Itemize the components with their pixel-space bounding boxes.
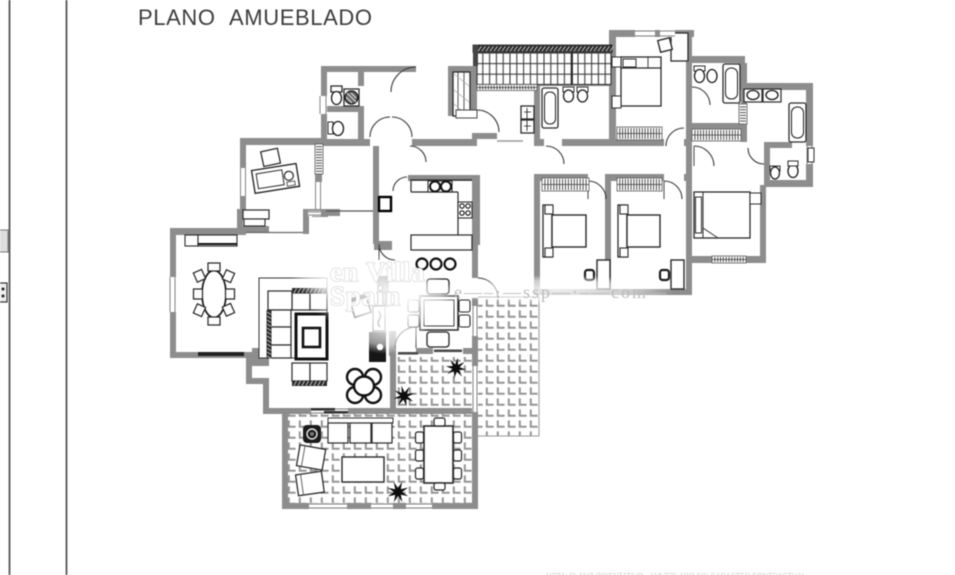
svg-text:Spain: Spain xyxy=(330,281,401,311)
svg-text:PLANO AMUEBLADO: PLANO AMUEBLADO xyxy=(138,5,373,30)
svg-text:e—–·—ѕѕp—·–—com—: e—–·—ѕѕp—·–—com— xyxy=(454,282,668,302)
svg-text:NOTA: PLANO ORIENTATIVO -: NOTA: PLANO ORIENTATIVO - AMUEBLADO SIN … xyxy=(546,571,806,575)
